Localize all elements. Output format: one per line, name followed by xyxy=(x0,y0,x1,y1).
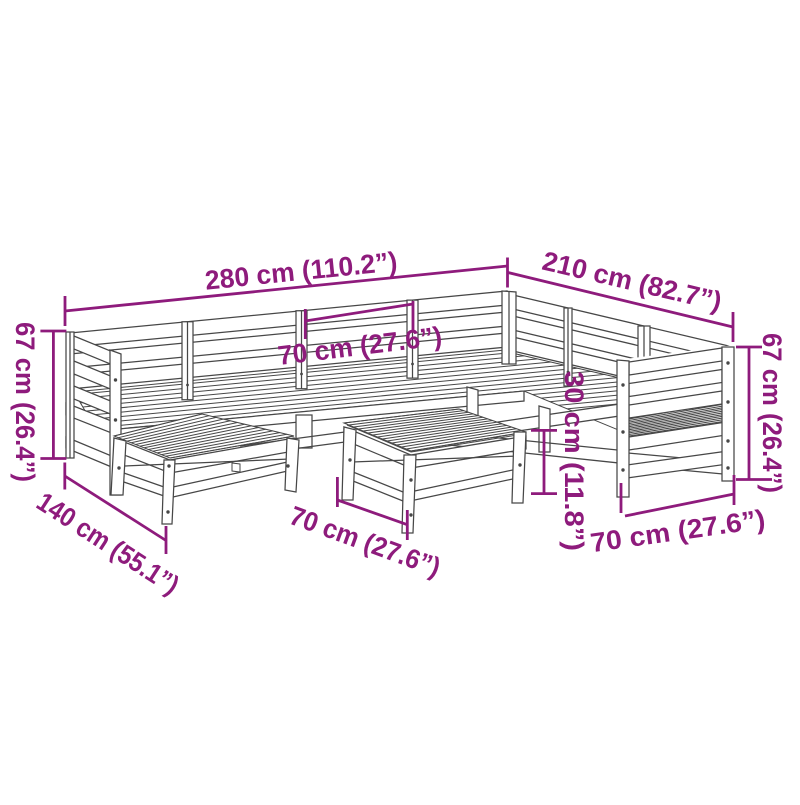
svg-text:67 cm (26.4”): 67 cm (26.4”) xyxy=(10,322,40,482)
svg-text:67 cm (26.4”): 67 cm (26.4”) xyxy=(757,333,787,493)
svg-text:30 cm (11.8”): 30 cm (11.8”) xyxy=(559,371,589,551)
